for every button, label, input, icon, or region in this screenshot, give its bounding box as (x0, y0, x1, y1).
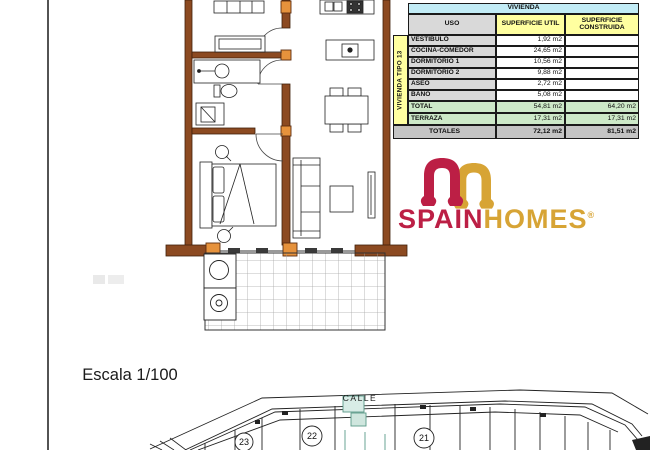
total-util: 54,81 m2 (496, 101, 565, 113)
row-value-empty (565, 68, 639, 79)
totales-util: 72,12 m2 (496, 125, 565, 139)
row-label: DORMITORIO 1 (408, 57, 496, 68)
cut-off-building (632, 436, 650, 450)
col-header-util: SUPERFICIE UTIL (496, 14, 565, 35)
totales-construida: 81,51 m2 (565, 125, 639, 139)
unit-number-badges (235, 426, 434, 450)
kitchen-furniture (320, 0, 374, 60)
building-top-edge (190, 404, 638, 450)
total-label: TOTAL (408, 101, 496, 113)
brand-spain: SPAIN (398, 204, 484, 234)
row-value-empty (565, 57, 639, 68)
sofa-icon (293, 158, 320, 238)
row-value: 2,72 m2 (496, 79, 565, 90)
row-value: 5,08 m2 (496, 90, 565, 101)
site-plan: 23 22 21 CALLE (150, 390, 650, 450)
apartment-floor-plan (166, 0, 407, 330)
unit-number: 21 (419, 433, 429, 443)
row-value-empty (565, 90, 639, 101)
building-inner-line (198, 412, 618, 450)
coffee-table (330, 186, 353, 212)
row-value-empty (565, 46, 639, 57)
row-label: VESTIBULO (408, 35, 496, 46)
dining-table-icon (325, 88, 368, 132)
terrace (204, 253, 385, 330)
row-value: 24,65 m2 (496, 46, 565, 57)
street-inner-edge (185, 401, 642, 450)
stove-icon (347, 1, 363, 13)
unit-number: 22 (307, 431, 317, 441)
row-label: BAÑO (408, 90, 496, 101)
watermark-mark (93, 275, 124, 284)
row-label: DORMITORIO 2 (408, 68, 496, 79)
highlighted-unit (343, 396, 385, 450)
tv-icon (368, 172, 375, 218)
row-label: COCINA-COMEDOR (408, 46, 496, 57)
hatch-lines (150, 438, 186, 450)
row-label: ASEO (408, 79, 496, 90)
terraza-label: TERRAZA (408, 113, 496, 125)
scale-label: Escala 1/100 (82, 366, 177, 384)
bedroom1-furniture (200, 146, 276, 243)
terraza-construida: 17,31 m2 (565, 113, 639, 125)
street-label: CALLE (343, 393, 377, 403)
terraza-util: 17,31 m2 (496, 113, 565, 125)
arches-icon (420, 158, 500, 210)
row-value-empty (565, 79, 639, 90)
row-value: 1,92 m2 (496, 35, 565, 46)
col-header-construida: SUPERFICIE CONSTRUIDA (565, 14, 639, 35)
area-table: VIVIENDA USO SUPERFICIE UTIL SUPERFICIE … (393, 3, 639, 139)
spain-homes-logo: SPAINHOMES® (398, 156, 638, 240)
registered-mark: ® (588, 210, 596, 220)
total-construida: 64,20 m2 (565, 101, 639, 113)
table-title: VIVIENDA (408, 3, 639, 14)
row-value: 9,88 m2 (496, 68, 565, 79)
sink-icon (215, 64, 229, 78)
bedroom2-furniture (214, 1, 265, 52)
dwelling-type-strip: VIVIENDA TIPO 13 (393, 35, 408, 125)
laundry-sink-icon (210, 261, 229, 280)
col-header-uso: USO (408, 14, 496, 35)
row-value: 10,56 m2 (496, 57, 565, 68)
unit-number: 23 (239, 437, 249, 447)
brand-wordmark: SPAINHOMES® (398, 204, 638, 235)
washing-machine-icon (211, 295, 228, 312)
bathroom-fixtures (194, 60, 260, 125)
floor-plan-sheet: Escala 1/100 (0, 0, 650, 450)
totales-label: TOTALES (393, 125, 496, 139)
toilet-icon (221, 85, 237, 98)
headboard (200, 162, 212, 228)
living-room-furniture (293, 158, 375, 238)
unit-dividers (205, 404, 610, 450)
brand-homes: HOMES (484, 204, 588, 234)
row-value-empty (565, 35, 639, 46)
site-detail-marks (255, 403, 546, 424)
